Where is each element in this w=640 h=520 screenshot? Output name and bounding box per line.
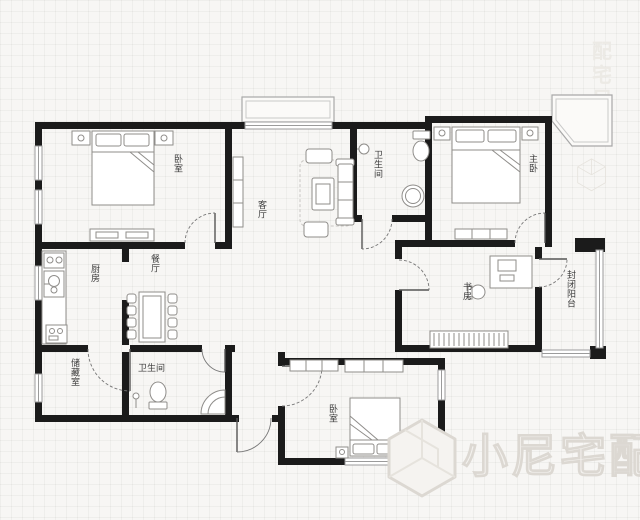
toilet: [149, 382, 167, 409]
sofa: [336, 159, 354, 225]
label-storage: 储藏室: [71, 357, 80, 387]
wardrobe: [345, 360, 403, 372]
dining-table: [139, 292, 165, 342]
bathroom-second-fixtures: [133, 382, 225, 414]
label-bedroom-bottom: 卧室: [329, 403, 338, 424]
label-bathroom-main: 卫生间: [374, 150, 383, 179]
floor-plan-drawing: 配宅尼小: [0, 0, 640, 520]
label-dining-room: 餐厅: [151, 253, 160, 274]
door-bathroom-main: [362, 219, 392, 249]
sink: [357, 144, 369, 154]
label-bedroom-top-left: 卧室: [174, 153, 183, 174]
label-living-room: 客厅: [258, 199, 267, 220]
door-bedroom-bottom: [282, 366, 322, 406]
toilet: [413, 131, 430, 161]
window: [542, 350, 590, 357]
watermark-brand-text: 小尼宅配: [462, 430, 640, 482]
washing-machine: [46, 325, 67, 343]
nightstand: [522, 127, 538, 140]
door-entry: [237, 418, 271, 452]
bay-window-top-right: [552, 95, 612, 146]
nightstand: [434, 127, 450, 140]
double-bed: [92, 131, 154, 205]
coffee-table: [312, 178, 334, 210]
label-kitchen: 厨房: [91, 264, 100, 284]
study-furniture: [430, 256, 532, 348]
tv-cabinet: [233, 157, 243, 227]
bedroom-top-left-furniture: [72, 131, 173, 241]
bathtub: [402, 185, 424, 207]
watermark-brand: 小尼宅配: [389, 420, 640, 496]
nightstand: [72, 131, 90, 145]
bathroom-main-fixtures: [357, 131, 430, 207]
armchair: [306, 149, 332, 163]
dresser: [455, 229, 507, 239]
door-bedroom-top-left: [185, 213, 215, 243]
kitchen-sink: [44, 271, 64, 297]
stove: [44, 253, 64, 268]
window: [35, 266, 42, 300]
kitchen-fixtures: [42, 251, 67, 344]
nightstand: [336, 447, 348, 458]
double-bed: [452, 127, 520, 203]
door-study: [399, 260, 429, 290]
dining-furniture: [127, 292, 177, 342]
label-study: 书房: [463, 282, 472, 302]
label-bathroom-second: 卫生间: [138, 362, 165, 373]
window: [245, 122, 332, 129]
window: [35, 374, 42, 402]
living-room-furniture: [233, 149, 354, 237]
bay-window-top: [242, 97, 334, 122]
window: [35, 146, 42, 180]
floor-plan: 配宅尼小: [0, 0, 640, 520]
cabinet: [290, 360, 338, 371]
floor-drain: [133, 393, 139, 408]
dresser: [90, 229, 154, 241]
armchair: [304, 222, 328, 237]
window: [438, 370, 445, 400]
nightstand: [155, 131, 173, 145]
door-master-bedroom: [515, 213, 545, 243]
bookshelf: [430, 331, 508, 348]
master-bedroom-furniture: [434, 127, 538, 239]
desk: [490, 256, 532, 288]
label-master-bedroom: 主卧: [529, 153, 538, 174]
corner-shower: [201, 390, 225, 414]
label-enclosed-balcony: 封闭阳台: [567, 269, 576, 309]
cube-logo-small: [578, 159, 606, 191]
door-balcony: [539, 259, 567, 287]
door-bathroom-second: [202, 349, 225, 372]
window: [596, 250, 603, 348]
window: [35, 190, 42, 224]
